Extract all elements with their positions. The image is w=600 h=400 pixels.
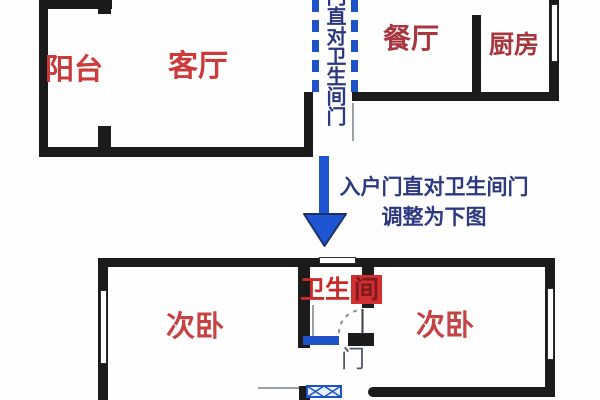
floorplan-diagram: 门直对卫生间门 阳台 客厅 餐厅 厨房 入户门直对卫生间门 调整为下图 门 卫生…: [0, 0, 600, 400]
sliding-window-icon: [306, 385, 342, 398]
annotation-line2: 调整为下图: [338, 202, 530, 232]
leader-line-vertical: [352, 103, 354, 141]
room-label-dining-room: 餐厅: [383, 25, 439, 53]
room-label-bedroom-left: 次卧: [166, 312, 224, 341]
right-bedroom-window: [547, 288, 554, 360]
annotation-line1: 入户门直对卫生间门: [338, 172, 530, 202]
bathroom-top-window: [319, 257, 356, 264]
bottom-leader-line: [258, 387, 300, 389]
bathroom-label-prefix: 卫生: [300, 277, 350, 302]
bottom-plan-bottom-wall: [368, 387, 550, 397]
door-path-dashed-line-left: [312, 0, 319, 96]
room-label-bedroom-right: 次卧: [416, 311, 474, 340]
balcony-partition-bottom-stub: [98, 126, 111, 157]
room-label-bathroom: 卫生间: [300, 275, 382, 304]
dining-bottom-wall: [352, 92, 559, 101]
room-label-living-room: 客厅: [168, 52, 228, 82]
balcony-partition-top-stub: [98, 0, 111, 14]
entrance-wall-stub: [304, 92, 313, 157]
dining-kitchen-partition: [472, 15, 481, 101]
bathroom-label-highlight: 间: [351, 275, 382, 304]
top-plan-bottom-wall: [39, 147, 313, 157]
door-path-dashed-line-right: [351, 0, 358, 96]
room-label-balcony: 阳台: [45, 55, 103, 84]
bathroom-door-label: 门: [341, 347, 365, 371]
left-bedroom-window: [100, 290, 107, 364]
adjustment-annotation: 入户门直对卫生间门 调整为下图: [338, 172, 530, 232]
bathroom-door-swing-arc: [330, 300, 376, 346]
kitchen-window: [551, 4, 558, 62]
door-path-vertical-note: 门直对卫生间门: [321, 0, 349, 136]
bathroom-inner-line: [312, 305, 314, 336]
room-label-kitchen: 厨房: [489, 32, 539, 57]
